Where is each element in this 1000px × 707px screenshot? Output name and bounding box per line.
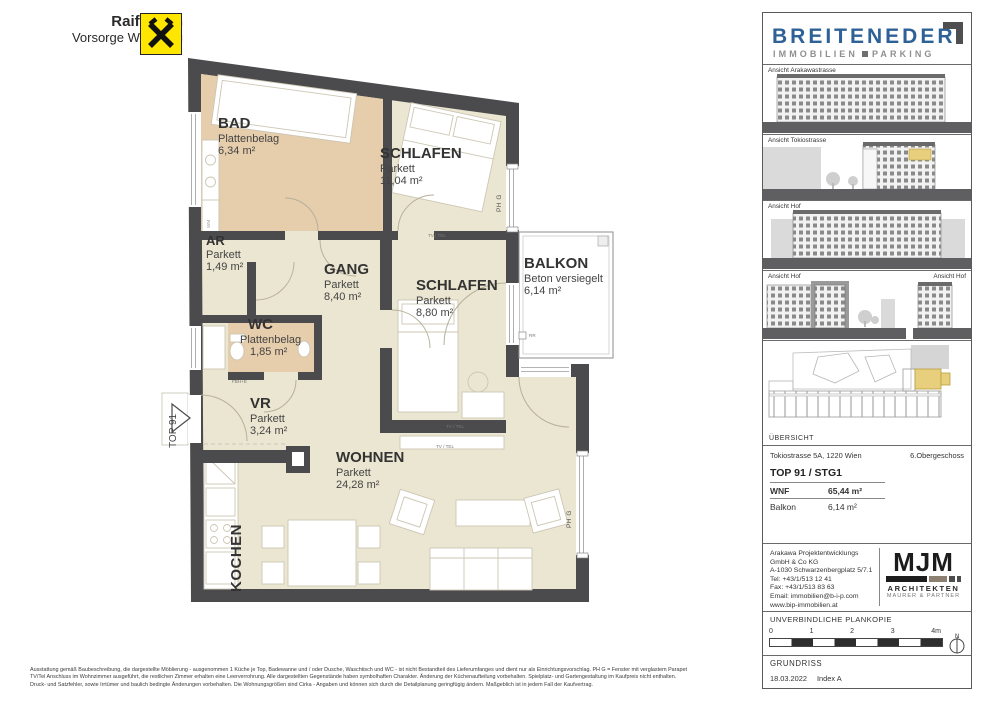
contact-block: Arakawa Projektentwicklungs GmbH & Co KG… (770, 550, 872, 610)
contact-line: GmbH & Co KG (770, 559, 872, 568)
contact-section: Arakawa Projektentwicklungs GmbH & Co KG… (763, 544, 971, 612)
tv-tel-annotation-1: TV | TEL (428, 233, 446, 238)
disclaimer-line3: Druck- und Satzfehler, sowie Irrtümer un… (30, 682, 690, 689)
room-label-gang: GANG Parkett 8,40 m² (324, 262, 369, 303)
elevation-drawing (763, 135, 971, 201)
disclaimer-line2: TV/Tel Anschluss im Wohnzimmer ausgeführ… (30, 674, 690, 681)
project-floor: 6.Obergeschoss (910, 451, 964, 460)
sidebar-panel: BREITENEDER IMMOBILIEN PARKING Ansicht A… (762, 12, 972, 689)
room-label-wohnen: WOHNEN Parkett 24,28 m² (336, 450, 404, 491)
scale-tick: 0 (769, 628, 773, 635)
elevation-label: Ansicht Tokiostrasse (768, 137, 826, 144)
tv-tel-annotation-3: TV / TEL (436, 444, 454, 449)
room-label-bad: BAD Plattenbelag 6,34 m² (218, 116, 279, 157)
scale-tick: 3 (891, 628, 895, 635)
address-row: Tokiostrasse 5A, 1220 Wien 6.Obergeschos… (763, 446, 971, 464)
fbhe-annotation: FBH+E (232, 379, 247, 384)
site-plan-drawing (763, 343, 971, 433)
scale-tick: 1 (810, 628, 814, 635)
architect-logo-bar (886, 576, 961, 582)
tv-tel-annotation-2: TV / TEL (446, 424, 464, 429)
elevation-hof-2: Ansicht Hof Ansicht Hof (763, 271, 971, 341)
metric-balkon-value: 6,14 m² (828, 502, 857, 512)
room-label-wc: WC Plattenbelag 1,85 m² (240, 317, 301, 358)
plan-date: 18.03.2022 (770, 674, 807, 683)
footer-disclaimer: Ausstattung gemäß Baubeschreibung, die d… (30, 667, 690, 689)
elevation-label-left: Ansicht Hof (768, 273, 801, 280)
brand-square-icon (862, 51, 868, 57)
unit-entrance-label: TOP 91 (168, 414, 179, 448)
scale-tick: 4m (931, 628, 941, 635)
elevation-label: Ansicht Arakawastrasse (768, 67, 836, 74)
room-label-kochen: KOCHEN (228, 524, 245, 592)
scale-tick: 2 (850, 628, 854, 635)
brand-name: BREITENEDER (772, 25, 956, 49)
wm-annotation: WM (206, 220, 211, 228)
contact-line: Tel: +43/1/513 12 41 (770, 576, 872, 585)
elevation-label: Ansicht Hof (768, 203, 801, 210)
elevation-tokiostrasse: Ansicht Tokiostrasse (763, 135, 971, 201)
rr-marker (519, 332, 526, 339)
pillar-niche (292, 452, 304, 466)
contact-line: www.bip-immobilien.at (770, 602, 872, 611)
elevation-arakawastrasse: Ansicht Arakawastrasse (763, 65, 971, 135)
phg-annotation-1: PH G (496, 194, 503, 212)
brand-subtitle: IMMOBILIEN PARKING (773, 49, 935, 59)
room-label-ar: AR Parkett 1,49 m² (206, 234, 243, 273)
architect-name: MJM (880, 550, 967, 574)
elevation-drawing (763, 271, 971, 341)
metric-wnf-label: WNF (770, 486, 828, 496)
brand-sub-left: IMMOBILIEN (773, 49, 858, 59)
phg-annotation-2: PH G (566, 510, 573, 528)
scale-bar-section: 0 1 2 3 4m N (763, 627, 971, 655)
room-label-schlafen2: SCHLAFEN Parkett 8,80 m² (416, 278, 498, 319)
brand-section: BREITENEDER IMMOBILIEN PARKING (763, 13, 971, 65)
spacer (763, 514, 971, 544)
metric-wnf-value: 65,44 m² (828, 486, 862, 496)
brand-sub-right: PARKING (872, 49, 935, 59)
scale-ticks: 0 1 2 3 4m (769, 628, 941, 635)
contact-line: Arakawa Projektentwicklungs (770, 550, 872, 559)
rr-annotation: RR (529, 333, 536, 338)
elevation-drawing (763, 65, 971, 135)
brand-corner-icon (942, 21, 964, 50)
overview-label: ÜBERSICHT (769, 435, 814, 442)
date-row: 18.03.2022 Index A (763, 670, 971, 686)
room-label-balkon: BALKON Beton versiegelt 6,14 m² (524, 256, 603, 297)
contact-line: Fax: +43/1/513 83 63 (770, 584, 872, 593)
plan-type-label: GRUNDRISS (763, 655, 971, 670)
contact-line: Email: immobilien@b-i-p.com (770, 593, 872, 602)
room-label-vr: VR Parkett 3,24 m² (250, 396, 287, 437)
architect-line1: ARCHITEKTEN (880, 584, 967, 593)
metric-wnf: WNF 65,44 m² (770, 482, 885, 499)
project-address: Tokiostrasse 5A, 1220 Wien (770, 451, 862, 460)
contact-line: A-1030 Schwarzenbergplatz 5/7.1 (770, 567, 872, 576)
architect-line2: MAURER & PARTNER (880, 593, 967, 599)
elevation-drawing (763, 201, 971, 271)
metric-balkon-label: Balkon (770, 502, 828, 512)
plankopie-note: UNVERBINDLICHE PLANKOPIE (763, 612, 971, 627)
plan-index: Index A (817, 674, 842, 683)
entrance-opening (188, 395, 201, 443)
north-arrow-icon: N (947, 631, 967, 653)
site-plan-section: ÜBERSICHT (763, 341, 971, 446)
room-label-schlafen1: SCHLAFEN Parkett 11,04 m² (380, 146, 462, 187)
scale-bar (769, 638, 943, 647)
elevation-hof-1: Ansicht Hof (763, 201, 971, 271)
elevation-label-right: Ansicht Hof (933, 273, 966, 280)
architect-logo: MJM ARCHITEKTEN MAURER & PARTNER (879, 548, 967, 606)
metric-balkon: Balkon 6,14 m² (763, 499, 971, 514)
unit-title: TOP 91 / STG1 (763, 464, 971, 482)
